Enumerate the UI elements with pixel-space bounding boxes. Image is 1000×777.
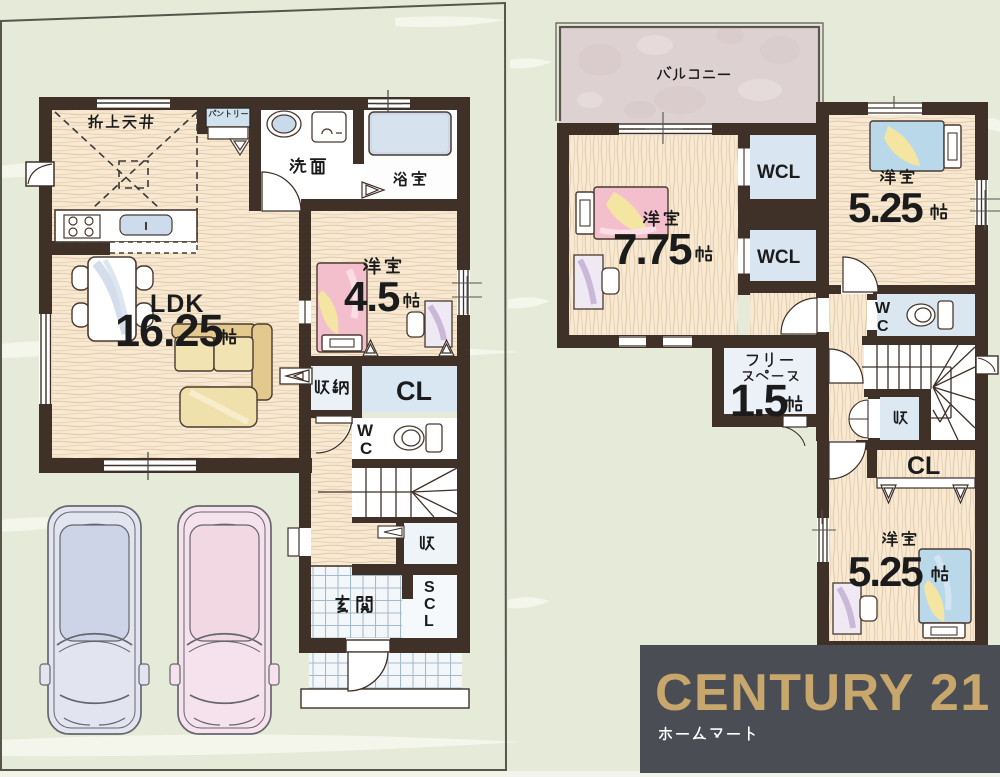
svg-text:W: W xyxy=(875,300,891,317)
svg-text:C: C xyxy=(424,596,436,613)
svg-text:5.25: 5.25 xyxy=(848,548,923,595)
svg-text:1.5: 1.5 xyxy=(730,375,788,426)
svg-text:C: C xyxy=(360,439,372,458)
svg-text:7.75: 7.75 xyxy=(613,225,692,274)
svg-text:CL: CL xyxy=(396,376,432,406)
svg-text:CENTURY 21: CENTURY 21 xyxy=(655,664,991,722)
svg-text:L: L xyxy=(424,613,434,630)
svg-text:W: W xyxy=(357,421,374,440)
svg-text:16.25: 16.25 xyxy=(115,305,223,356)
svg-text:CL: CL xyxy=(907,452,940,480)
svg-text:WCL: WCL xyxy=(757,162,801,183)
svg-text:4.5: 4.5 xyxy=(344,273,400,320)
svg-text:5.25: 5.25 xyxy=(848,184,923,231)
svg-text:WCL: WCL xyxy=(757,247,801,268)
svg-text:C: C xyxy=(877,318,889,335)
svg-text:S: S xyxy=(424,579,435,596)
